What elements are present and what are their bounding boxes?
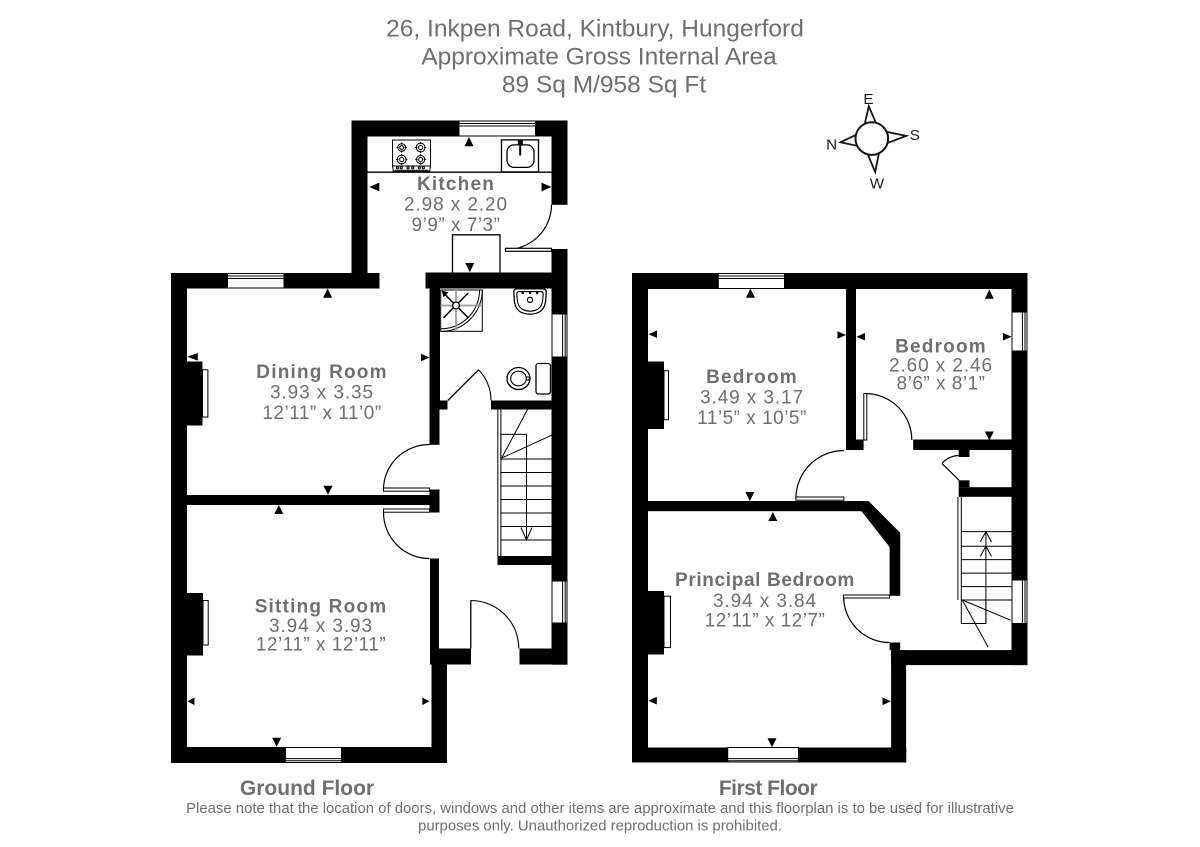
svg-text:2.98 x 2.20: 2.98 x 2.20 [404,195,508,216]
svg-text:First Floor: First Floor [719,777,818,800]
svg-text:S: S [910,127,920,144]
svg-text:Dining Room: Dining Room [256,362,387,383]
svg-text:E: E [863,91,873,108]
svg-text:11’5” x 10’5”: 11’5” x 10’5” [697,408,807,429]
svg-text:12’11” x 12’11”: 12’11” x 12’11” [256,635,386,656]
svg-text:26, Inkpen Road, Kintbury, Hun: 26, Inkpen Road, Kintbury, Hungerford [386,16,804,43]
svg-text:3.94 x 3.84: 3.94 x 3.84 [713,591,817,612]
svg-text:Kitchen: Kitchen [417,174,495,195]
svg-text:W: W [870,175,885,192]
svg-text:3.93 x 3.35: 3.93 x 3.35 [270,383,374,404]
svg-text:3.49 x 3.17: 3.49 x 3.17 [700,388,804,409]
svg-text:Sitting Room: Sitting Room [255,597,388,618]
svg-text:N: N [826,136,837,153]
svg-text:9’9” x 7’3”: 9’9” x 7’3” [412,215,501,236]
svg-text:purposes only. Unauthorized re: purposes only. Unauthorized reproduction… [418,819,782,835]
svg-text:8’6” x 8’1”: 8’6” x 8’1” [897,374,986,395]
svg-text:12’11” x 12’7”: 12’11” x 12’7” [705,611,826,632]
svg-text:Please note that the location: Please note that the location of doors, … [186,801,1014,817]
svg-text:89 Sq M/958 Sq Ft: 89 Sq M/958 Sq Ft [502,72,706,99]
svg-text:Approximate Gross Internal Are: Approximate Gross Internal Area [421,44,777,71]
svg-text:Bedroom: Bedroom [895,337,987,358]
svg-text:Bedroom: Bedroom [706,367,798,388]
svg-text:Ground Floor: Ground Floor [240,777,374,800]
svg-text:12’11” x 11’0”: 12’11” x 11’0” [262,403,381,424]
svg-text:Principal Bedroom: Principal Bedroom [675,570,855,591]
